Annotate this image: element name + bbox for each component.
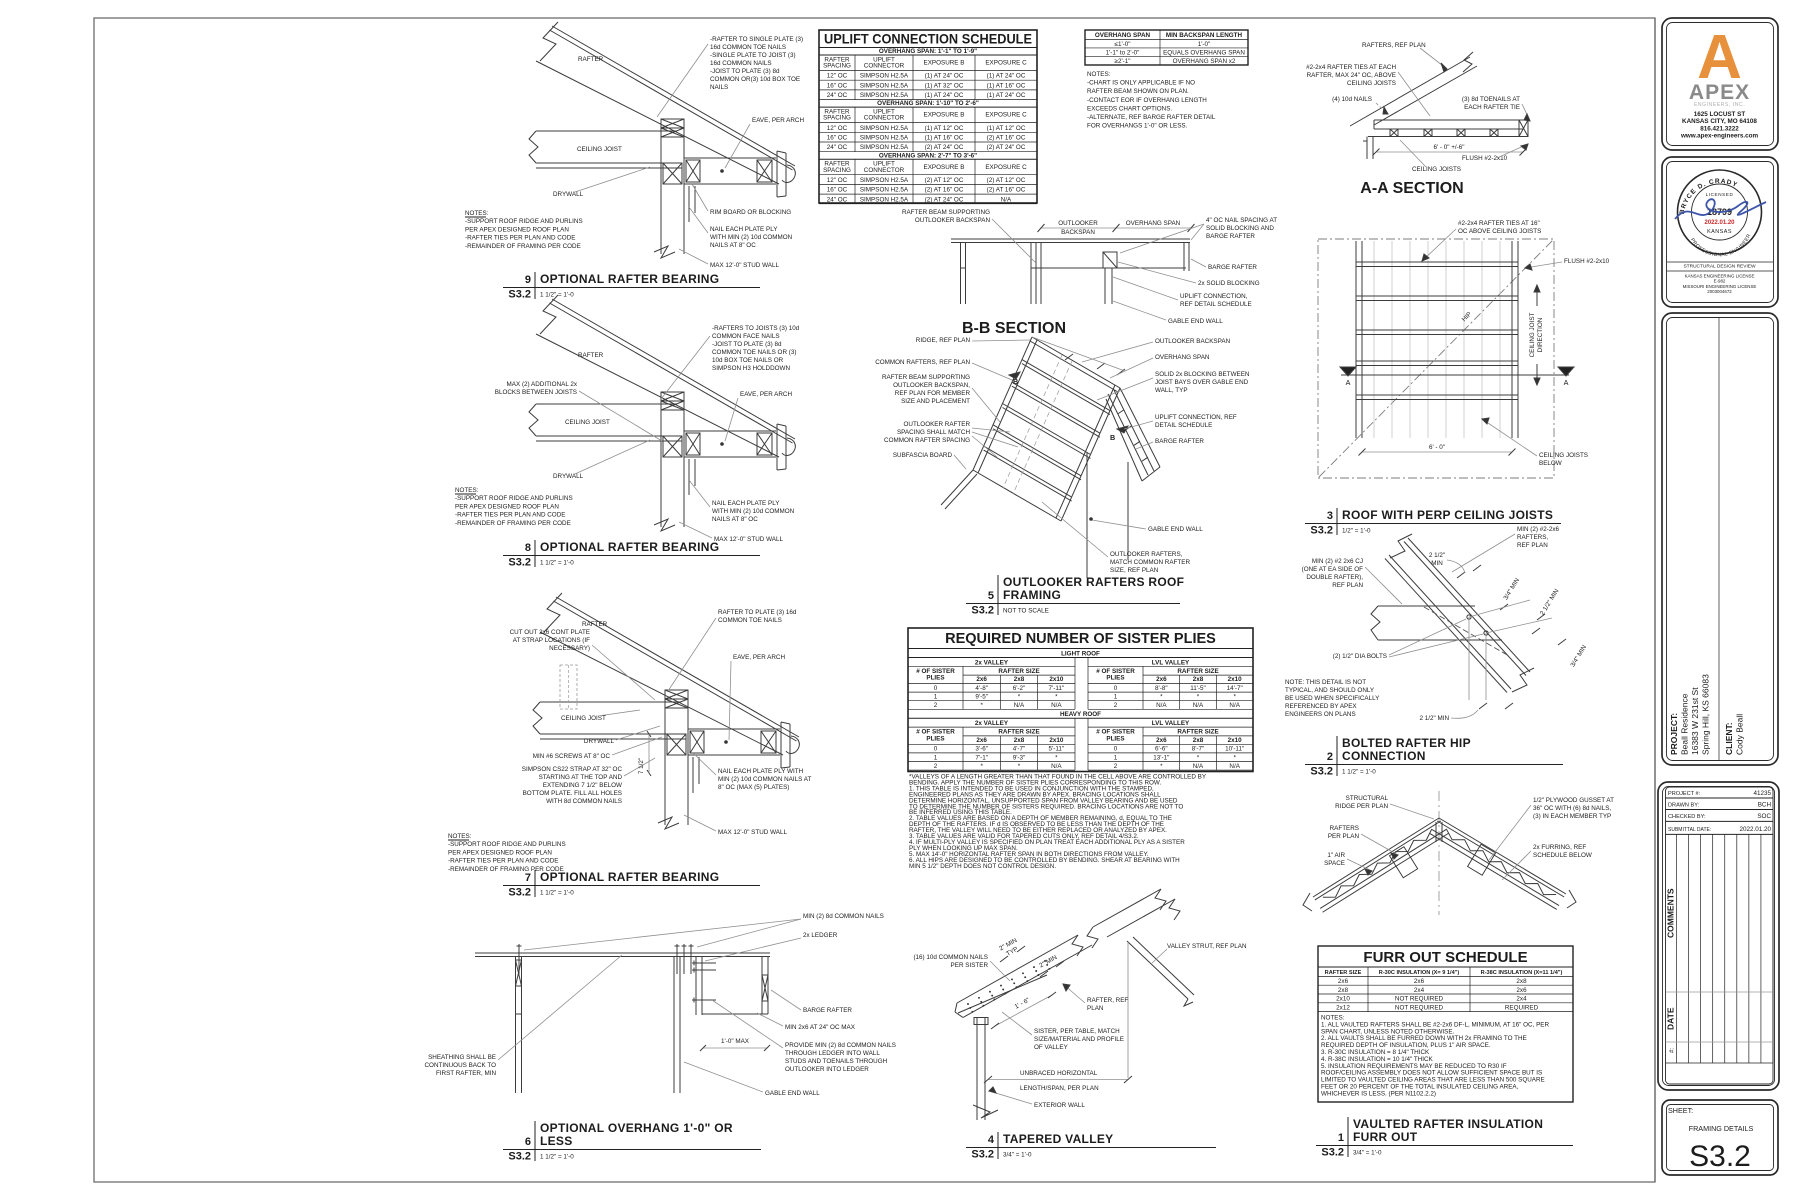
svg-text:1/2" PLYWOOD GUSSET AT: 1/2" PLYWOOD GUSSET AT (1533, 797, 1614, 804)
svg-text:RAFTERS,: RAFTERS, (1517, 534, 1548, 541)
svg-text:BELOW: BELOW (1539, 460, 1562, 467)
svg-text:OUTLOOKER RAFTERS ROOF: OUTLOOKER RAFTERS ROOF (1003, 575, 1184, 589)
svg-text:OC ABOVE CEILING JOISTS: OC ABOVE CEILING JOISTS (1458, 228, 1541, 235)
svg-text:2x12: 2x12 (1336, 1004, 1350, 1011)
svg-text:0: 0 (1114, 685, 1118, 692)
svg-text:MIN (2) 10d COMMON NAILS AT: MIN (2) 10d COMMON NAILS AT (718, 776, 811, 783)
svg-text:CONNECTOR: CONNECTOR (864, 115, 905, 122)
svg-text:PLIES: PLIES (926, 675, 944, 682)
svg-text:FRAMING: FRAMING (1003, 588, 1061, 602)
svg-text:#2-2x4 RAFTER TIES AT EACH: #2-2x4 RAFTER TIES AT EACH (1306, 64, 1396, 71)
svg-text:41235: 41235 (1753, 790, 1771, 797)
svg-text:1/2" = 1'-0: 1/2" = 1'-0 (1342, 528, 1371, 535)
svg-text:KANSAS: KANSAS (1707, 229, 1732, 235)
svg-text:DETAIL SCHEDULE: DETAIL SCHEDULE (1155, 422, 1212, 429)
svg-text:-SINGLE PLATE TO JOIST (3): -SINGLE PLATE TO JOIST (3) (710, 52, 796, 59)
svg-text:NAIL EACH PLATE PLY: NAIL EACH PLATE PLY (710, 226, 778, 233)
svg-text:SIMPSON H2.5A: SIMPSON H2.5A (860, 144, 909, 151)
svg-text:8" OC (MAX (5) PLATES): 8" OC (MAX (5) PLATES) (718, 784, 789, 791)
svg-text:2x SOLID BLOCKING: 2x SOLID BLOCKING (1198, 280, 1260, 287)
svg-text:6' - 0" +/-6": 6' - 0" +/-6" (1433, 144, 1464, 151)
svg-text:2x LEDGER: 2x LEDGER (803, 932, 838, 939)
svg-text:(1) AT 12" OC: (1) AT 12" OC (987, 125, 1026, 132)
svg-text:2 1/2": 2 1/2" (1429, 552, 1445, 559)
svg-text:2: 2 (1114, 763, 1118, 770)
svg-text:8'-7": 8'-7" (1192, 746, 1205, 753)
svg-text:TYPICAL, AND SHOULD ONLY: TYPICAL, AND SHOULD ONLY (1285, 687, 1375, 694)
svg-text:OPTIONAL RAFTER BEARING: OPTIONAL RAFTER BEARING (540, 870, 719, 884)
svg-text:2x10: 2x10 (1049, 676, 1064, 683)
svg-text:OUTLOOKER BACKSPAN: OUTLOOKER BACKSPAN (915, 217, 991, 224)
svg-text:16383 W 231st St: 16383 W 231st St (1690, 687, 1700, 755)
svg-text:PROVIDE MIN (2) 8d COMMON NAIL: PROVIDE MIN (2) 8d COMMON NAILS (785, 1042, 896, 1049)
svg-text:24" OC: 24" OC (827, 144, 848, 151)
svg-text:MIN 5 1/2" DEPTH DOES NOT CONT: MIN 5 1/2" DEPTH DOES NOT CONTROL DESIGN… (909, 863, 1056, 870)
svg-text:CEILING JOIST: CEILING JOIST (577, 146, 622, 153)
svg-text:BOLTED RAFTER HIP: BOLTED RAFTER HIP (1342, 736, 1471, 750)
svg-text:N/A: N/A (1229, 702, 1240, 709)
svg-text:2x4: 2x4 (1516, 996, 1527, 1003)
svg-text:R-30C INSULATION (X= 9 1/4"): R-30C INSULATION (X= 9 1/4") (1379, 970, 1460, 976)
svg-text:2: 2 (934, 702, 938, 709)
svg-text:(2) AT 24" OC: (2) AT 24" OC (925, 144, 964, 151)
svg-text:S3.2: S3.2 (508, 289, 531, 301)
svg-text:7 1/2": 7 1/2" (638, 758, 645, 774)
svg-text:-SUPPORT ROOF RIDGE AND PURLIN: -SUPPORT ROOF RIDGE AND PURLINS (448, 841, 566, 848)
svg-text:UPLIFT CONNECTION,: UPLIFT CONNECTION, (1180, 293, 1248, 300)
svg-text:OUTLOOKER: OUTLOOKER (1058, 220, 1098, 227)
svg-text:OVERHANG SPAN: 1'-1" TO 1'-9": OVERHANG SPAN: 1'-1" TO 1'-9" (879, 48, 977, 55)
svg-text:24" OC: 24" OC (827, 92, 848, 99)
svg-text:BOTTOM PLATE. FILL ALL HOLES: BOTTOM PLATE. FILL ALL HOLES (523, 790, 622, 797)
svg-text:NAILS AT 8" OC: NAILS AT 8" OC (710, 242, 756, 249)
svg-text:NAILS: NAILS (710, 84, 728, 91)
svg-text:BLOCKS BETWEEN JOISTS: BLOCKS BETWEEN JOISTS (495, 389, 577, 396)
svg-text:1 1/2" = 1'-0: 1 1/2" = 1'-0 (540, 292, 574, 299)
svg-text:≤1'-0": ≤1'-0" (1115, 41, 1131, 48)
svg-text:EXPOSURE C: EXPOSURE C (985, 112, 1027, 119)
svg-text:RIDGE PER PLAN: RIDGE PER PLAN (1335, 803, 1388, 810)
svg-text:NOT TO SCALE: NOT TO SCALE (1003, 608, 1049, 615)
svg-text:MAX 12'-0" STUD WALL: MAX 12'-0" STUD WALL (710, 262, 779, 269)
svg-text:1: 1 (1114, 694, 1118, 701)
svg-text:MIN BACKSPAN LENGTH: MIN BACKSPAN LENGTH (1166, 32, 1243, 39)
svg-text:COMMON RAFTER SPACING: COMMON RAFTER SPACING (884, 437, 970, 444)
svg-text:3: 3 (1327, 510, 1333, 522)
svg-text:(1) AT 24" OC: (1) AT 24" OC (925, 73, 964, 80)
svg-text:2: 2 (1114, 702, 1118, 709)
svg-text:VAULTED RAFTER INSULATION: VAULTED RAFTER INSULATION (1353, 1117, 1543, 1131)
svg-text:LVL VALLEY: LVL VALLEY (1152, 659, 1190, 666)
svg-text:(3) 8d TOENAILS AT: (3) 8d TOENAILS AT (1462, 96, 1520, 103)
svg-text:SIZE, REF PLAN: SIZE, REF PLAN (1110, 567, 1159, 574)
svg-text:NOT REQUIRED: NOT REQUIRED (1395, 1004, 1444, 1011)
svg-text:HEAVY ROOF: HEAVY ROOF (1060, 711, 1101, 718)
svg-text:N/A: N/A (1229, 763, 1240, 770)
svg-text:RIM BOARD OR BLOCKING: RIM BOARD OR BLOCKING (710, 209, 791, 216)
svg-text:RAFTER SIZE: RAFTER SIZE (998, 668, 1039, 675)
svg-text:0: 0 (1114, 746, 1118, 753)
svg-text:1'-0" MAX: 1'-0" MAX (721, 1038, 750, 1045)
svg-text:S3.2: S3.2 (1321, 1147, 1344, 1159)
svg-text:-RAFTER TIES PER PLAN AND CODE: -RAFTER TIES PER PLAN AND CODE (455, 512, 565, 519)
svg-text:RAFTER SIZE: RAFTER SIZE (998, 729, 1039, 736)
svg-text:SIMPSON H3 HOLDDOWN: SIMPSON H3 HOLDDOWN (712, 365, 790, 372)
svg-text:THROUGH LEDGER INTO WALL: THROUGH LEDGER INTO WALL (785, 1050, 880, 1057)
svg-text:-REMAINDER OF FRAMING PER CODE: -REMAINDER OF FRAMING PER CODE (465, 243, 581, 250)
svg-text:REF PLAN: REF PLAN (1332, 582, 1363, 589)
svg-text:RAFTER: RAFTER (578, 352, 604, 359)
svg-text:PROJECT #:: PROJECT #: (1668, 791, 1701, 797)
svg-text:3/4" = 1'-0: 3/4" = 1'-0 (1353, 1150, 1382, 1157)
svg-text:DRYWALL: DRYWALL (584, 738, 615, 745)
svg-text:RAFTER BEAM SUPPORTING: RAFTER BEAM SUPPORTING (902, 209, 990, 216)
svg-text:1 1/2" = 1'-0: 1 1/2" = 1'-0 (540, 890, 574, 897)
svg-text:RAFTER, MAX 24" OC, ABOVE: RAFTER, MAX 24" OC, ABOVE (1307, 72, 1396, 79)
svg-text:4'-8": 4'-8" (975, 685, 988, 692)
svg-text:MIN #6 SCREWS AT 8" OC: MIN #6 SCREWS AT 8" OC (533, 753, 611, 760)
svg-text:GABLE END WALL: GABLE END WALL (1148, 526, 1203, 533)
svg-text:EQUALS OVERHANG SPAN: EQUALS OVERHANG SPAN (1163, 50, 1245, 57)
svg-text:WHICHEVER IS LESS. (PER N1102.: WHICHEVER IS LESS. (PER N1102.2.2) (1321, 1090, 1436, 1097)
svg-text:CEILING JOIST: CEILING JOIST (1529, 312, 1536, 357)
svg-text:PER SISTER: PER SISTER (951, 962, 989, 969)
svg-text:SHEET:: SHEET: (1668, 1106, 1693, 1115)
svg-text:1 1/2" = 1'-0: 1 1/2" = 1'-0 (540, 1154, 574, 1161)
svg-text:DRYWALL: DRYWALL (553, 473, 584, 480)
svg-text:6'-2": 6'-2" (1013, 685, 1026, 692)
svg-text:NAIL EACH PLATE PLY WITH: NAIL EACH PLATE PLY WITH (718, 768, 804, 775)
svg-text:2x VALLEY: 2x VALLEY (975, 720, 1009, 727)
svg-text:EAVE, PER ARCH: EAVE, PER ARCH (752, 117, 804, 124)
svg-text:-RAFTER TIES PER PLAN AND CODE: -RAFTER TIES PER PLAN AND CODE (465, 235, 575, 242)
svg-text:-JOIST TO PLATE (3) 8d: -JOIST TO PLATE (3) 8d (712, 341, 782, 348)
svg-text:BCH: BCH (1758, 801, 1772, 808)
svg-text:CEILING JOISTS: CEILING JOISTS (1412, 166, 1461, 173)
svg-text:RAFTER SIZE: RAFTER SIZE (1177, 668, 1218, 675)
svg-text:SISTER, PER TABLE, MATCH: SISTER, PER TABLE, MATCH (1034, 1028, 1120, 1035)
svg-text:LIGHT ROOF: LIGHT ROOF (1061, 650, 1100, 657)
svg-text:9: 9 (525, 274, 531, 286)
svg-text:S3.2: S3.2 (1310, 766, 1333, 778)
svg-text:EXTERIOR WALL: EXTERIOR WALL (1034, 1102, 1085, 1109)
svg-text:2x4: 2x4 (1414, 987, 1425, 994)
svg-text:OUTLOOKER BACKSPAN,: OUTLOOKER BACKSPAN, (893, 382, 970, 389)
svg-text:VALLEY STRUT, REF PLAN: VALLEY STRUT, REF PLAN (1167, 943, 1247, 950)
svg-text:SUBFASCIA BOARD: SUBFASCIA BOARD (893, 452, 953, 459)
svg-text:-CHART IS ONLY APPLICABLE IF N: -CHART IS ONLY APPLICABLE IF NO (1087, 80, 1195, 87)
svg-text:24" OC: 24" OC (827, 196, 848, 203)
svg-text:SPACING SHALL MATCH: SPACING SHALL MATCH (897, 429, 970, 436)
svg-text:S3.2: S3.2 (971, 1149, 994, 1161)
svg-text:-RAFTERS TO JOISTS (3) 10d: -RAFTERS TO JOISTS (3) 10d (712, 325, 800, 332)
svg-text:SIZE AND PLACEMENT: SIZE AND PLACEMENT (901, 398, 970, 405)
svg-text:5: 5 (988, 590, 994, 602)
svg-text:(16) 10d COMMON NAILS: (16) 10d COMMON NAILS (913, 954, 988, 961)
svg-text:STARTING AT THE TOP AND: STARTING AT THE TOP AND (539, 774, 623, 781)
svg-text:(1) AT 12" OC: (1) AT 12" OC (925, 125, 964, 132)
svg-text:www.apex-engineers.com: www.apex-engineers.com (1680, 133, 1759, 140)
svg-text:EAVE, PER ARCH: EAVE, PER ARCH (740, 391, 792, 398)
svg-text:OPTIONAL OVERHANG 1'-0" OR: OPTIONAL OVERHANG 1'-0" OR (540, 1121, 733, 1135)
svg-text:REFERENCED BY APEX: REFERENCED BY APEX (1285, 703, 1357, 710)
svg-text:REQUIRED: REQUIRED (1505, 1004, 1539, 1011)
svg-text:N/A: N/A (1001, 196, 1012, 203)
svg-text:UNBRACED HORIZONTAL: UNBRACED HORIZONTAL (1020, 1070, 1098, 1077)
svg-text:RAFTER: RAFTER (582, 621, 608, 628)
svg-text:SPACING: SPACING (823, 115, 851, 122)
svg-text:2: 2 (934, 763, 938, 770)
svg-text:COMMON OR(3) 10d BOX TOE: COMMON OR(3) 10d BOX TOE (710, 76, 800, 83)
svg-text:2x6: 2x6 (976, 676, 987, 683)
svg-text:13'-1": 13'-1" (1153, 754, 1169, 761)
svg-text:JOIST BAYS OVER GABLE END: JOIST BAYS OVER GABLE END (1155, 379, 1249, 386)
svg-text:1'-0": 1'-0" (1198, 41, 1211, 48)
svg-text:REF PLAN: REF PLAN (1517, 542, 1548, 549)
svg-text:EXPOSURE B: EXPOSURE B (924, 112, 965, 119)
svg-text:PLAN: PLAN (1087, 1005, 1104, 1012)
svg-text:0: 0 (934, 685, 938, 692)
svg-text:SIZE/MATERIAL AND PROFILE: SIZE/MATERIAL AND PROFILE (1034, 1036, 1124, 1043)
svg-text:12" OC: 12" OC (827, 177, 848, 184)
svg-text:ROOF WITH PERP CEILING JOISTS: ROOF WITH PERP CEILING JOISTS (1342, 508, 1553, 522)
svg-text:2x8: 2x8 (1193, 676, 1204, 683)
svg-text:(1) AT 24" OC: (1) AT 24" OC (987, 92, 1026, 99)
svg-text:SIMPSON H2.5A: SIMPSON H2.5A (860, 187, 909, 194)
svg-text:EXPOSURE B: EXPOSURE B (924, 60, 965, 67)
svg-text:(2) AT 24" OC: (2) AT 24" OC (987, 144, 1026, 151)
svg-text:-ALTERNATE, REF BARGE RAFTER D: -ALTERNATE, REF BARGE RAFTER DETAIL (1087, 114, 1216, 121)
svg-text:S3.2: S3.2 (508, 557, 531, 569)
svg-text:-SUPPORT ROOF RIDGE AND PURLIN: -SUPPORT ROOF RIDGE AND PURLINS (455, 495, 573, 502)
svg-text:7'-11": 7'-11" (1049, 685, 1065, 692)
svg-text:NAILS AT 8" OC: NAILS AT 8" OC (712, 516, 758, 523)
svg-text:(1) AT 16" OC: (1) AT 16" OC (987, 82, 1026, 89)
svg-text:2x6: 2x6 (976, 737, 987, 744)
svg-text:CONNECTION: CONNECTION (1342, 749, 1426, 763)
svg-text:UPLIFT CONNECTION, REF: UPLIFT CONNECTION, REF (1155, 414, 1237, 421)
svg-text:NOT REQUIRED: NOT REQUIRED (1395, 996, 1444, 1003)
svg-text:PLIES: PLIES (1106, 675, 1124, 682)
svg-text:NOTES:: NOTES: (465, 210, 489, 217)
svg-text:BACKSPAN: BACKSPAN (1061, 229, 1095, 236)
svg-text:SIMPSON H2.5A: SIMPSON H2.5A (860, 92, 909, 99)
svg-text:OUTLOOKER BACKSPAN: OUTLOOKER BACKSPAN (1155, 338, 1231, 345)
svg-text:NECESSARY): NECESSARY) (549, 645, 590, 652)
svg-text:N/A: N/A (1156, 702, 1167, 709)
svg-text:4" OC NAIL SPACING AT: 4" OC NAIL SPACING AT (1206, 217, 1277, 224)
svg-text:NAIL EACH PLATE PLY: NAIL EACH PLATE PLY (712, 500, 780, 507)
svg-text:Cody Beall: Cody Beall (1735, 714, 1745, 755)
svg-text:LESS: LESS (540, 1134, 573, 1148)
svg-text:MAX 12'-0" STUD WALL: MAX 12'-0" STUD WALL (714, 536, 783, 543)
svg-text:AT STRAP LOCATIONS (IF: AT STRAP LOCATIONS (IF (513, 637, 590, 644)
svg-text:GABLE END WALL: GABLE END WALL (765, 1090, 820, 1097)
svg-text:NOTE: THIS DETAIL IS NOT: NOTE: THIS DETAIL IS NOT (1285, 679, 1366, 686)
svg-text:16d COMMON TOE NAILS: 16d COMMON TOE NAILS (710, 44, 786, 51)
svg-text:RAFTERS, REF PLAN: RAFTERS, REF PLAN (1362, 42, 1426, 49)
svg-text:4: 4 (988, 1134, 995, 1146)
svg-text:SIMPSON H2.5A: SIMPSON H2.5A (860, 82, 909, 89)
svg-text:MAX (2) ADDITIONAL 2x: MAX (2) ADDITIONAL 2x (507, 381, 578, 388)
svg-text:OPTIONAL RAFTER BEARING: OPTIONAL RAFTER BEARING (540, 540, 719, 554)
svg-text:SIMPSON H2.5A: SIMPSON H2.5A (860, 135, 909, 142)
svg-text:COMMON TOE NAILS: COMMON TOE NAILS (718, 617, 782, 624)
svg-text:PER APEX DESIGNED ROOF PLAN: PER APEX DESIGNED ROOF PLAN (465, 226, 569, 233)
svg-text:6: 6 (525, 1136, 531, 1148)
svg-text:N/A: N/A (1193, 702, 1204, 709)
svg-text:OVERHANG SPAN: 2'-7" TO 3'-6": OVERHANG SPAN: 2'-7" TO 3'-6" (879, 152, 977, 159)
svg-text:14'-7": 14'-7" (1227, 685, 1243, 692)
svg-text:PLIES: PLIES (1106, 735, 1124, 742)
svg-text:11'-5": 11'-5" (1190, 685, 1206, 692)
svg-text:-JOIST TO PLATE (3) 8d: -JOIST TO PLATE (3) 8d (710, 68, 780, 75)
svg-text:PROJECT:: PROJECT: (1669, 713, 1679, 755)
svg-text:(1) AT 16" OC: (1) AT 16" OC (925, 135, 964, 142)
svg-text:SPACING: SPACING (823, 63, 851, 70)
svg-text:SIMPSON H2.5A: SIMPSON H2.5A (860, 196, 909, 203)
svg-text:WALL, TYP: WALL, TYP (1155, 387, 1188, 394)
svg-text:6' - 0": 6' - 0" (1429, 444, 1445, 451)
svg-text:EAVE, PER ARCH: EAVE, PER ARCH (733, 654, 785, 661)
svg-text:12" OC: 12" OC (827, 125, 848, 132)
svg-text:OVERHANG SPAN x2: OVERHANG SPAN x2 (1173, 58, 1236, 65)
svg-text:16" OC: 16" OC (827, 187, 848, 194)
svg-text:MIN (2) #2 2x6 CJ: MIN (2) #2 2x6 CJ (1312, 558, 1363, 565)
svg-text:CONNECTOR: CONNECTOR (864, 63, 905, 70)
svg-text:2x8: 2x8 (1014, 737, 1025, 744)
svg-text:≥2'-1": ≥2'-1" (1115, 58, 1131, 65)
svg-text:8'-8": 8'-8" (1155, 685, 1168, 692)
svg-text:MIN (2) 8d COMMON NAILS: MIN (2) 8d COMMON NAILS (803, 913, 884, 920)
svg-text:A: A (1564, 378, 1569, 387)
svg-text:COMMENTS: COMMENTS (1666, 888, 1676, 938)
svg-text:Beall Residence: Beall Residence (1680, 693, 1690, 755)
svg-text:7'-1": 7'-1" (975, 754, 988, 761)
svg-text:REF DETAIL SCHEDULE: REF DETAIL SCHEDULE (1180, 301, 1252, 308)
svg-text:NOTES:: NOTES: (455, 487, 479, 494)
svg-text:SHEATHING SHALL BE: SHEATHING SHALL BE (428, 1054, 496, 1061)
svg-text:FLUSH #2-2x10: FLUSH #2-2x10 (1564, 258, 1610, 265)
svg-text:(2) 1/2" DIA BOLTS: (2) 1/2" DIA BOLTS (1333, 653, 1387, 660)
svg-text:(2) AT 16" OC: (2) AT 16" OC (925, 187, 964, 194)
svg-text:1 1/2" = 1'-0: 1 1/2" = 1'-0 (1342, 769, 1376, 776)
svg-text:2x FURRING, REF: 2x FURRING, REF (1533, 844, 1586, 851)
svg-text:-SUPPORT ROOF RIDGE AND PURLIN: -SUPPORT ROOF RIDGE AND PURLINS (465, 218, 583, 225)
svg-text:OUTLOOKER RAFTERS,: OUTLOOKER RAFTERS, (1110, 551, 1183, 558)
svg-text:S3.2: S3.2 (1310, 525, 1333, 537)
svg-text:TAPERED VALLEY: TAPERED VALLEY (1003, 1132, 1113, 1146)
svg-text:1: 1 (934, 754, 938, 761)
svg-text:OF VALLEY: OF VALLEY (1034, 1044, 1069, 1051)
svg-text:2x6: 2x6 (1414, 978, 1425, 985)
svg-text:(2) AT 16" OC: (2) AT 16" OC (987, 135, 1026, 142)
svg-text:RAFTER SIZE: RAFTER SIZE (1177, 729, 1218, 736)
svg-text:STRUCTURAL: STRUCTURAL (1346, 795, 1389, 802)
svg-text:BE USED WHEN SPECIFICALLY: BE USED WHEN SPECIFICALLY (1285, 695, 1380, 702)
svg-text:LENGTH/SPAN, PER PLAN: LENGTH/SPAN, PER PLAN (1020, 1085, 1099, 1092)
svg-text:2x8: 2x8 (1338, 987, 1349, 994)
svg-text:RAFTER, REF: RAFTER, REF (1087, 997, 1128, 1004)
svg-text:1'-1" to 2'-0": 1'-1" to 2'-0" (1106, 50, 1140, 57)
svg-text:OVERHANG SPAN: OVERHANG SPAN (1155, 354, 1210, 361)
svg-text:KANSAS CITY, MO 64108: KANSAS CITY, MO 64108 (1682, 118, 1757, 125)
svg-text:S3.2: S3.2 (1689, 1140, 1751, 1173)
svg-text:16" OC: 16" OC (827, 82, 848, 89)
svg-text:MAX 12'-0" STUD WALL: MAX 12'-0" STUD WALL (718, 829, 787, 836)
svg-text:CHECKED BY:: CHECKED BY: (1668, 814, 1706, 820)
svg-text:2x6: 2x6 (1156, 676, 1167, 683)
svg-text:ENGINEERS ON PLANS: ENGINEERS ON PLANS (1285, 711, 1356, 718)
svg-text:CLIENT:: CLIENT: (1724, 722, 1734, 755)
svg-text:3/4" = 1'-0: 3/4" = 1'-0 (1003, 1152, 1032, 1159)
svg-text:1 1/2" = 1'-0: 1 1/2" = 1'-0 (540, 560, 574, 567)
svg-text:BARGE RAFTER: BARGE RAFTER (1208, 264, 1257, 271)
svg-text:RIDGE, REF PLAN: RIDGE, REF PLAN (916, 337, 971, 344)
svg-text:9'-5": 9'-5" (975, 694, 988, 701)
svg-text:NOTES:: NOTES: (448, 833, 472, 840)
svg-text:2022.01.20: 2022.01.20 (1704, 220, 1735, 226)
svg-text:SUBMITTAL DATE:: SUBMITTAL DATE: (1668, 827, 1711, 833)
svg-text:RAFTER: RAFTER (578, 56, 604, 63)
svg-text:FOR OVERHANGS 1'-0" OR LESS.: FOR OVERHANGS 1'-0" OR LESS. (1087, 123, 1188, 130)
svg-text:WITH MIN (2) 10d COMMON: WITH MIN (2) 10d COMMON (712, 508, 795, 515)
svg-text:-RAFTER TO SINGLE PLATE (3): -RAFTER TO SINGLE PLATE (3) (710, 36, 803, 43)
svg-text:S3.2: S3.2 (508, 887, 531, 899)
svg-text:A-A SECTION: A-A SECTION (1360, 180, 1463, 197)
svg-text:#:: #: (1670, 1048, 1676, 1053)
svg-text:(1) AT 32" OC: (1) AT 32" OC (925, 82, 964, 89)
svg-text:EXCEEDS CHART OPTIONS.: EXCEEDS CHART OPTIONS. (1087, 105, 1172, 112)
svg-text:CONNECTOR: CONNECTOR (864, 167, 905, 174)
svg-text:10'-11": 10'-11" (1225, 746, 1244, 753)
svg-text:(ONE AT EA SIDE OF: (ONE AT EA SIDE OF (1302, 566, 1364, 573)
svg-text:2x10: 2x10 (1049, 737, 1064, 744)
svg-text:-CONTACT EOR IF OVERHANG LENGT: -CONTACT EOR IF OVERHANG LENGTH (1087, 97, 1207, 104)
svg-text:SIMPSON H2.5A: SIMPSON H2.5A (860, 73, 909, 80)
svg-text:2x8: 2x8 (1014, 676, 1025, 683)
svg-text:MIN (2) #2-2x6: MIN (2) #2-2x6 (1517, 526, 1559, 533)
svg-text:OVERHANG SPAN: 1'-10" TO 2'-6": OVERHANG SPAN: 1'-10" TO 2'-6" (877, 100, 979, 107)
svg-text:REF PLAN FOR MEMBER: REF PLAN FOR MEMBER (895, 390, 971, 397)
svg-text:EXPOSURE C: EXPOSURE C (985, 164, 1027, 171)
svg-text:5'-11": 5'-11" (1049, 746, 1065, 753)
svg-text:2: 2 (1327, 751, 1333, 763)
svg-text:3'-6": 3'-6" (975, 746, 988, 753)
svg-text:RAFTER BEAM SHOWN ON PLAN.: RAFTER BEAM SHOWN ON PLAN. (1087, 88, 1189, 95)
svg-text:SIMPSON H2.5A: SIMPSON H2.5A (860, 177, 909, 184)
svg-text:12" OC: 12" OC (827, 73, 848, 80)
svg-text:(1) AT 24" OC: (1) AT 24" OC (987, 73, 1026, 80)
svg-text:WITH 8d COMMON NAILS: WITH 8d COMMON NAILS (546, 798, 622, 805)
svg-text:(2) AT 12" OC: (2) AT 12" OC (925, 177, 964, 184)
svg-text:0: 0 (934, 746, 938, 753)
svg-text:SPACE: SPACE (1324, 860, 1345, 867)
svg-text:CEILING JOIST: CEILING JOIST (565, 419, 610, 426)
svg-text:16" OC: 16" OC (827, 135, 848, 142)
svg-text:1" AIR: 1" AIR (1327, 852, 1345, 859)
svg-text:STUDS AND TOENAILS THROUGH: STUDS AND TOENAILS THROUGH (785, 1058, 888, 1065)
svg-text:1: 1 (1114, 754, 1118, 761)
svg-text:OUTLOOKER INTO LEDGER: OUTLOOKER INTO LEDGER (785, 1066, 869, 1073)
svg-text:PLIES: PLIES (926, 735, 944, 742)
svg-text:10d BOX TOE NAILS OR: 10d BOX TOE NAILS OR (712, 357, 784, 364)
svg-text:BARGE RAFTER: BARGE RAFTER (1155, 438, 1204, 445)
svg-text:(2) AT 16" OC: (2) AT 16" OC (987, 187, 1026, 194)
svg-text:2022.01.20: 2022.01.20 (1739, 826, 1771, 833)
svg-text:(3) IN EACH MEMBER TYP: (3) IN EACH MEMBER TYP (1533, 813, 1611, 820)
svg-text:CEILING JOISTS: CEILING JOISTS (1539, 452, 1588, 459)
